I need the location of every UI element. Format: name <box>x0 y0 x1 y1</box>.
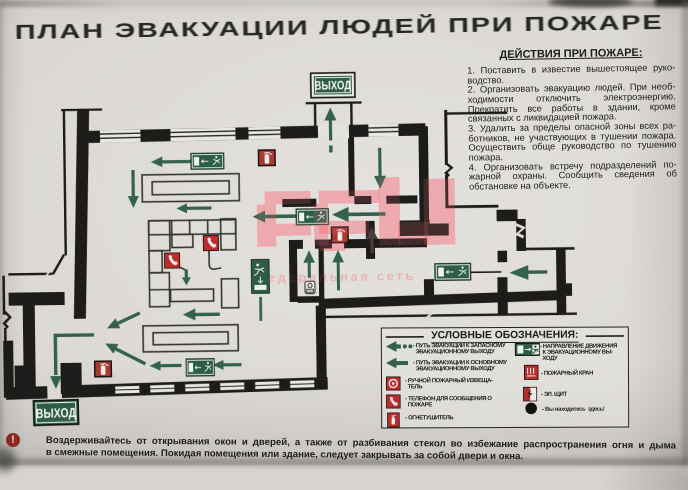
svg-text:едеральная сеть: едеральная сеть <box>268 268 416 285</box>
